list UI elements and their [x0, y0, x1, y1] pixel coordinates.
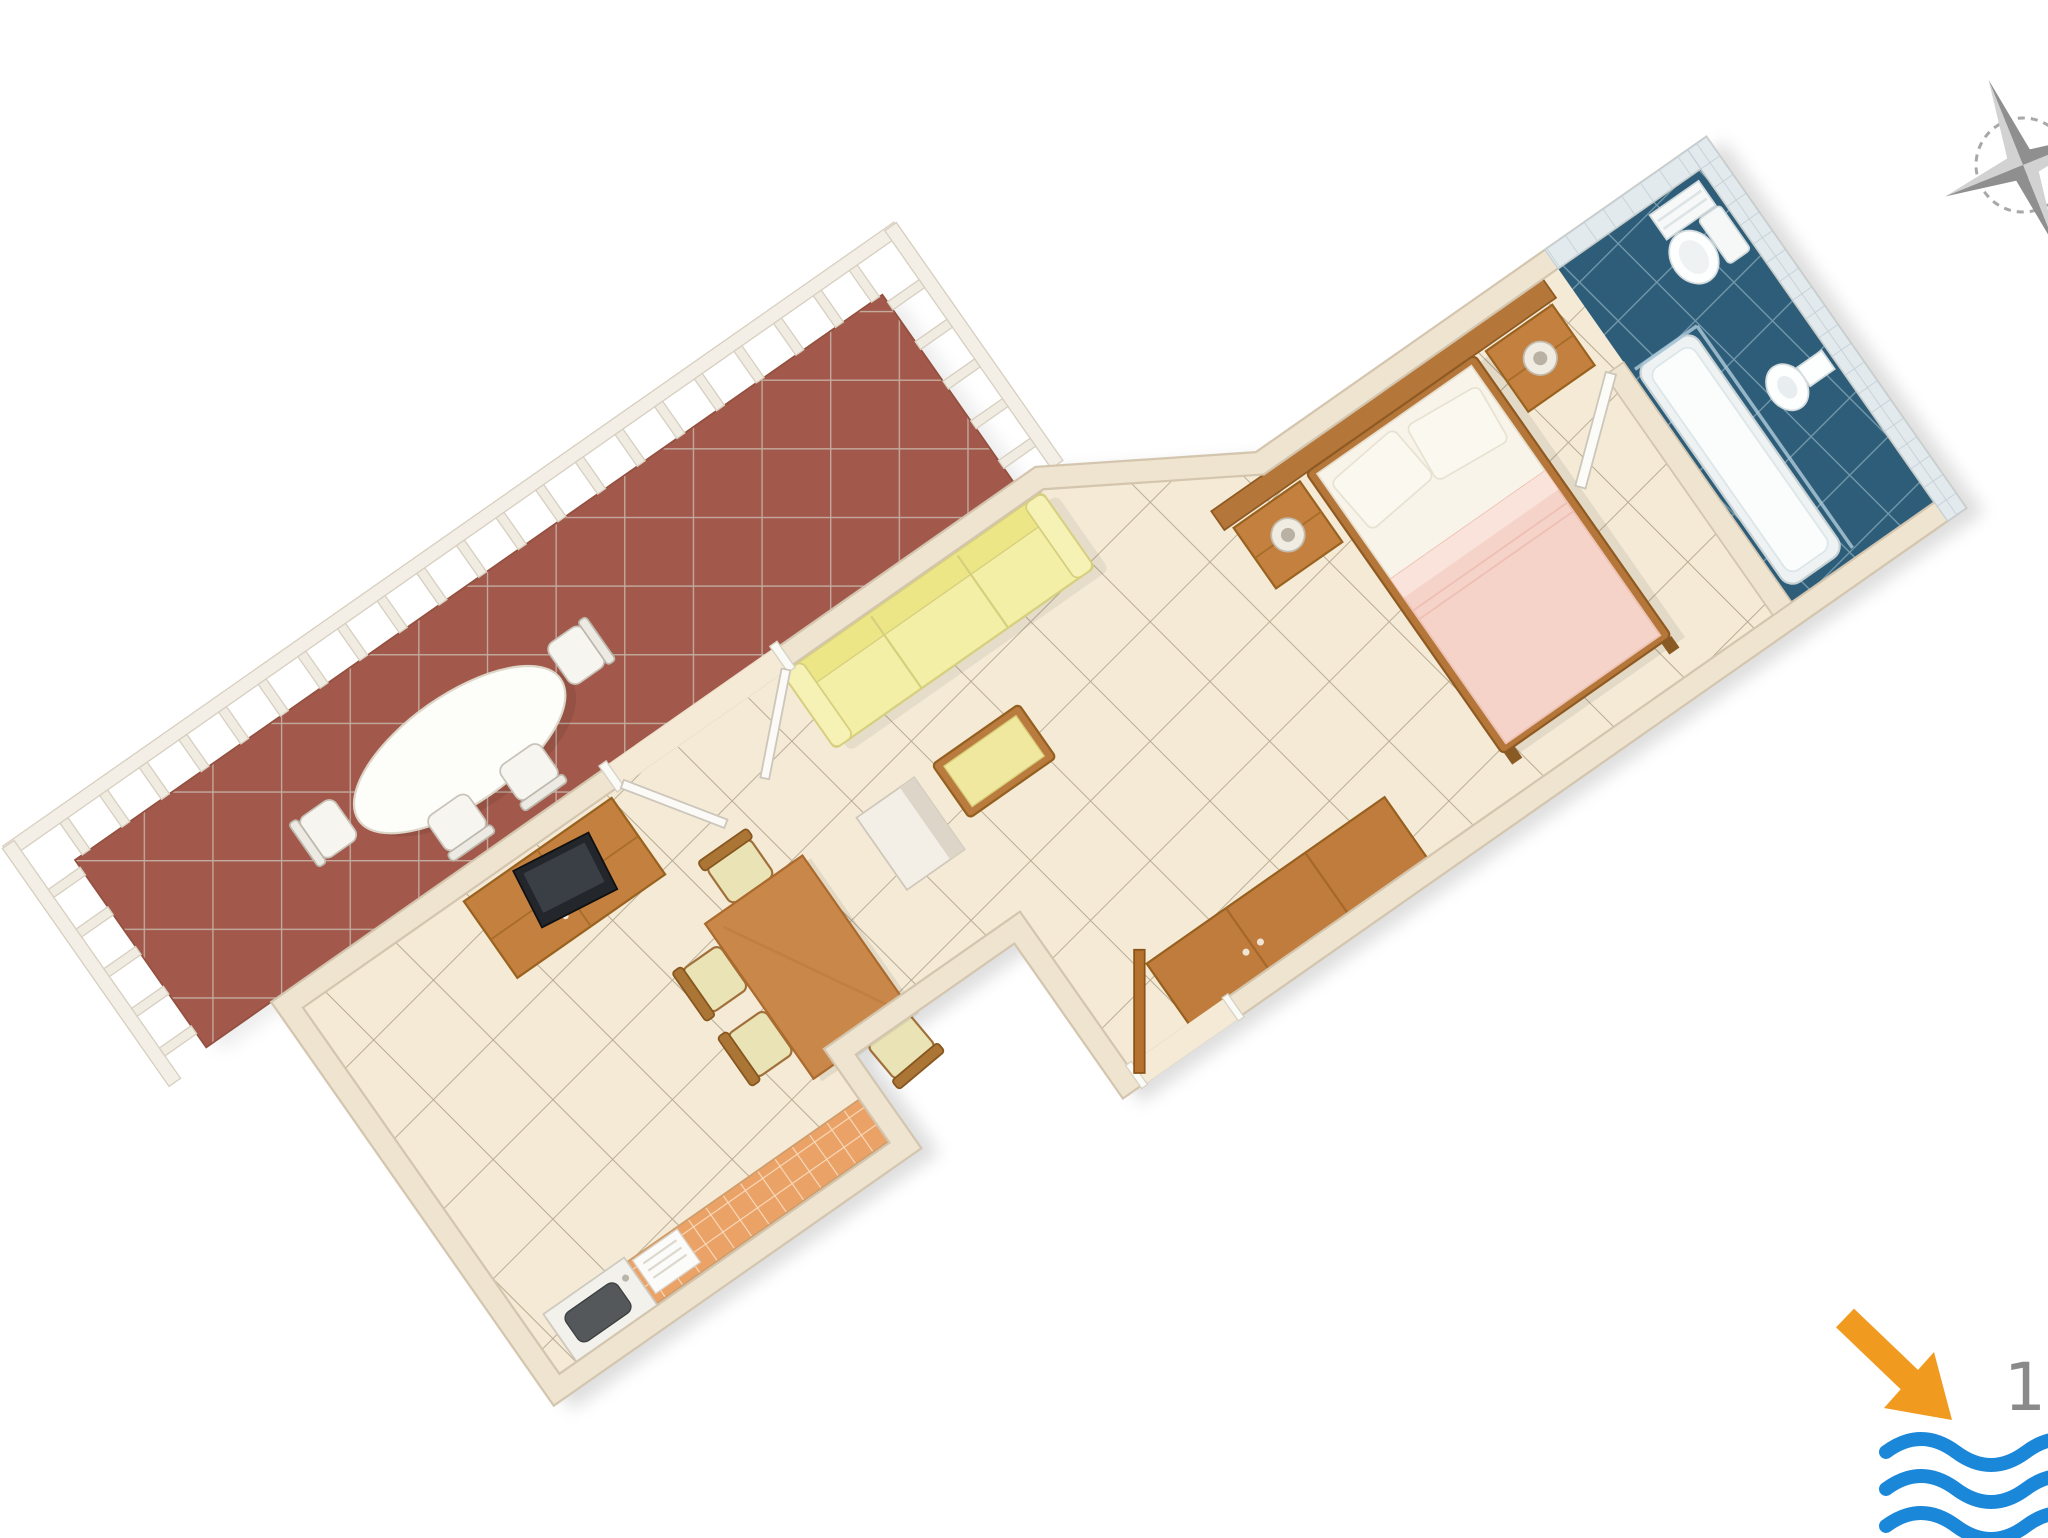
apartment-plan	[1, 0, 1984, 1538]
sea-direction-arrow-icon	[1845, 1318, 1952, 1420]
waves-icon	[1886, 1439, 2048, 1538]
distance-label: 15	[2004, 1349, 2048, 1426]
compass-icon	[1911, 48, 2048, 282]
floor-plan-stage: 15	[0, 0, 2048, 1538]
floor-plan-svg: 15	[0, 0, 2048, 1538]
